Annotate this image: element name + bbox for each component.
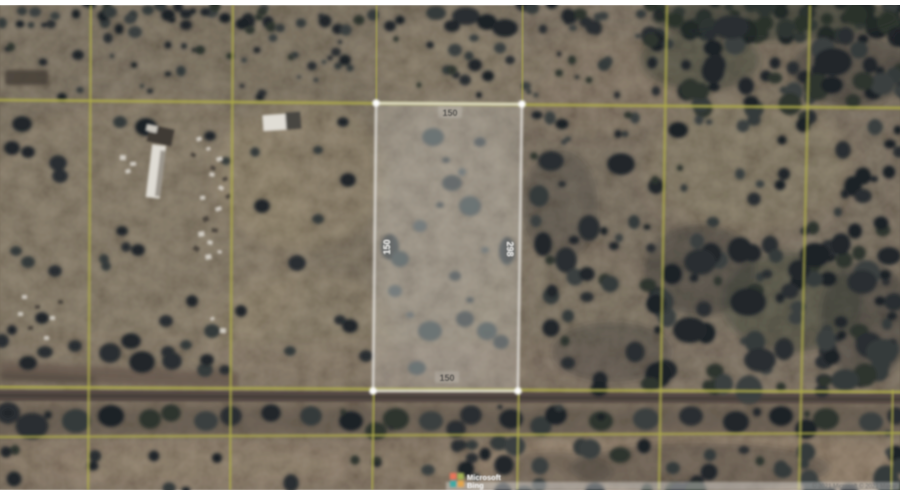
svg-text:150: 150 <box>439 373 454 383</box>
svg-text:© 2021 Microsoft © 2021 Maxar: © 2021 Microsoft © 2021 Maxar <box>812 483 897 490</box>
svg-text:298: 298 <box>505 241 515 256</box>
svg-text:150: 150 <box>442 108 457 118</box>
svg-text:Bing: Bing <box>467 481 484 490</box>
svg-text:150: 150 <box>382 239 392 254</box>
